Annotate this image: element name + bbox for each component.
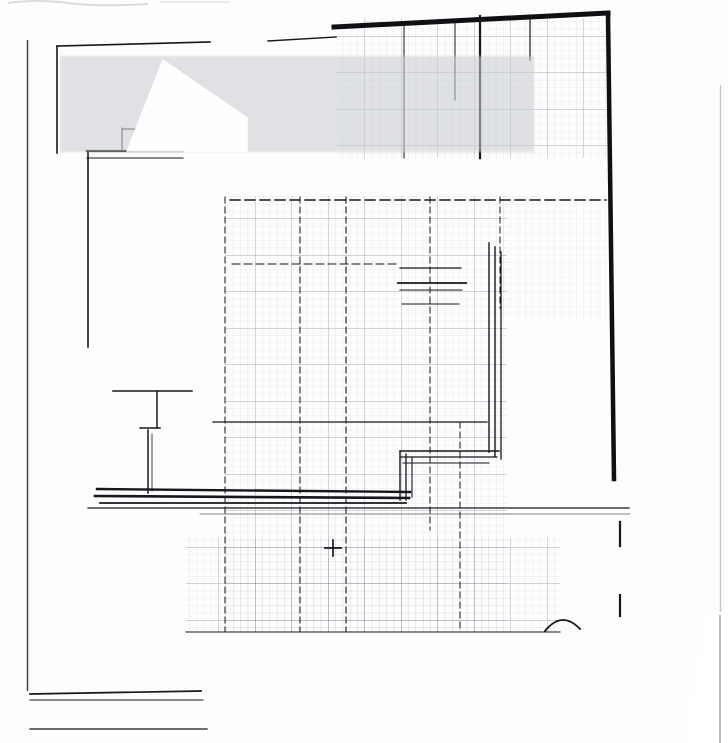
- scan-fade: [634, 612, 728, 743]
- watermark-band: [60, 56, 534, 152]
- page-edge-line: [719, 615, 721, 743]
- scanned-floorplan-page: [0, 0, 728, 743]
- watermark: [60, 56, 534, 152]
